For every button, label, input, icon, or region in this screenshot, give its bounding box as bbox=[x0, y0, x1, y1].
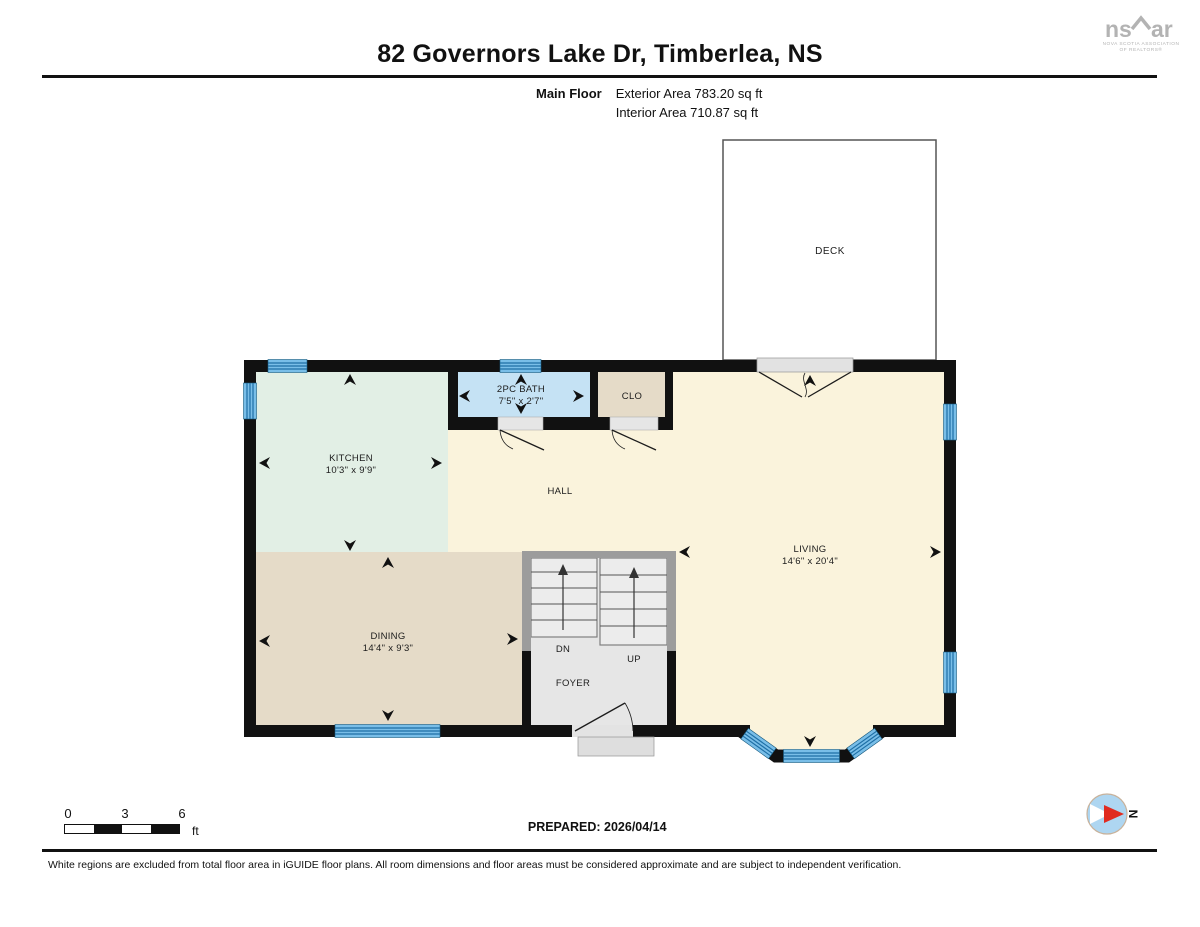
bath-dims: 7'5" x 2'7" bbox=[499, 396, 544, 407]
stairs-up-label: UP bbox=[627, 654, 641, 665]
window-kitchen-top bbox=[268, 360, 307, 373]
compass-north-label: N bbox=[1126, 810, 1140, 819]
window-bath-top bbox=[500, 360, 541, 373]
footer-divider bbox=[42, 849, 1157, 852]
prepared-date: PREPARED: 2026/04/14 bbox=[528, 820, 667, 834]
front-porch-step bbox=[578, 737, 654, 756]
front-door-threshold bbox=[572, 725, 633, 737]
disclaimer-text: White regions are excluded from total fl… bbox=[48, 859, 1158, 871]
scale-tick-3: 3 bbox=[121, 806, 128, 821]
bath-label: 2PC BATH bbox=[497, 384, 545, 395]
window-bay-bottom bbox=[784, 750, 840, 763]
closet-label: CLO bbox=[622, 391, 642, 402]
living-dims: 14'6" x 20'4" bbox=[782, 556, 838, 567]
living-label: LIVING bbox=[794, 544, 827, 555]
compass: N bbox=[1083, 790, 1145, 845]
hall-label: HALL bbox=[548, 486, 573, 497]
bath-door-threshold bbox=[498, 417, 543, 430]
deck-label: DECK bbox=[815, 246, 845, 257]
scale-tick-0: 0 bbox=[64, 806, 71, 821]
kitchen-label: KITCHEN bbox=[329, 453, 373, 464]
scale-bar-segments bbox=[64, 824, 180, 834]
window-dining-bottom bbox=[335, 725, 440, 738]
dining-dims: 14'4" x 9'3" bbox=[363, 643, 413, 654]
dining-label: DINING bbox=[370, 631, 405, 642]
scale-unit: ft bbox=[192, 824, 199, 838]
floor-plan-page: 82 Governors Lake Dr, Timberlea, NS Main… bbox=[0, 0, 1200, 927]
kitchen-dims: 10'3" x 9'9" bbox=[326, 465, 376, 476]
window-kitchen-left bbox=[244, 383, 257, 419]
scale-tick-6: 6 bbox=[178, 806, 185, 821]
window-living-right-lower bbox=[944, 652, 957, 693]
floor-plan-drawing: DECK KITCHEN 10'3" x 9'9" 2PC BATH 7'5" … bbox=[0, 0, 1200, 927]
window-living-right-upper bbox=[944, 404, 957, 440]
stairs-down-label: DN bbox=[556, 644, 570, 655]
foyer-label: FOYER bbox=[556, 678, 590, 689]
scale-bar: 0 3 6 ft bbox=[64, 806, 224, 834]
closet-door-threshold bbox=[610, 417, 658, 430]
deck-door-threshold bbox=[757, 358, 853, 372]
